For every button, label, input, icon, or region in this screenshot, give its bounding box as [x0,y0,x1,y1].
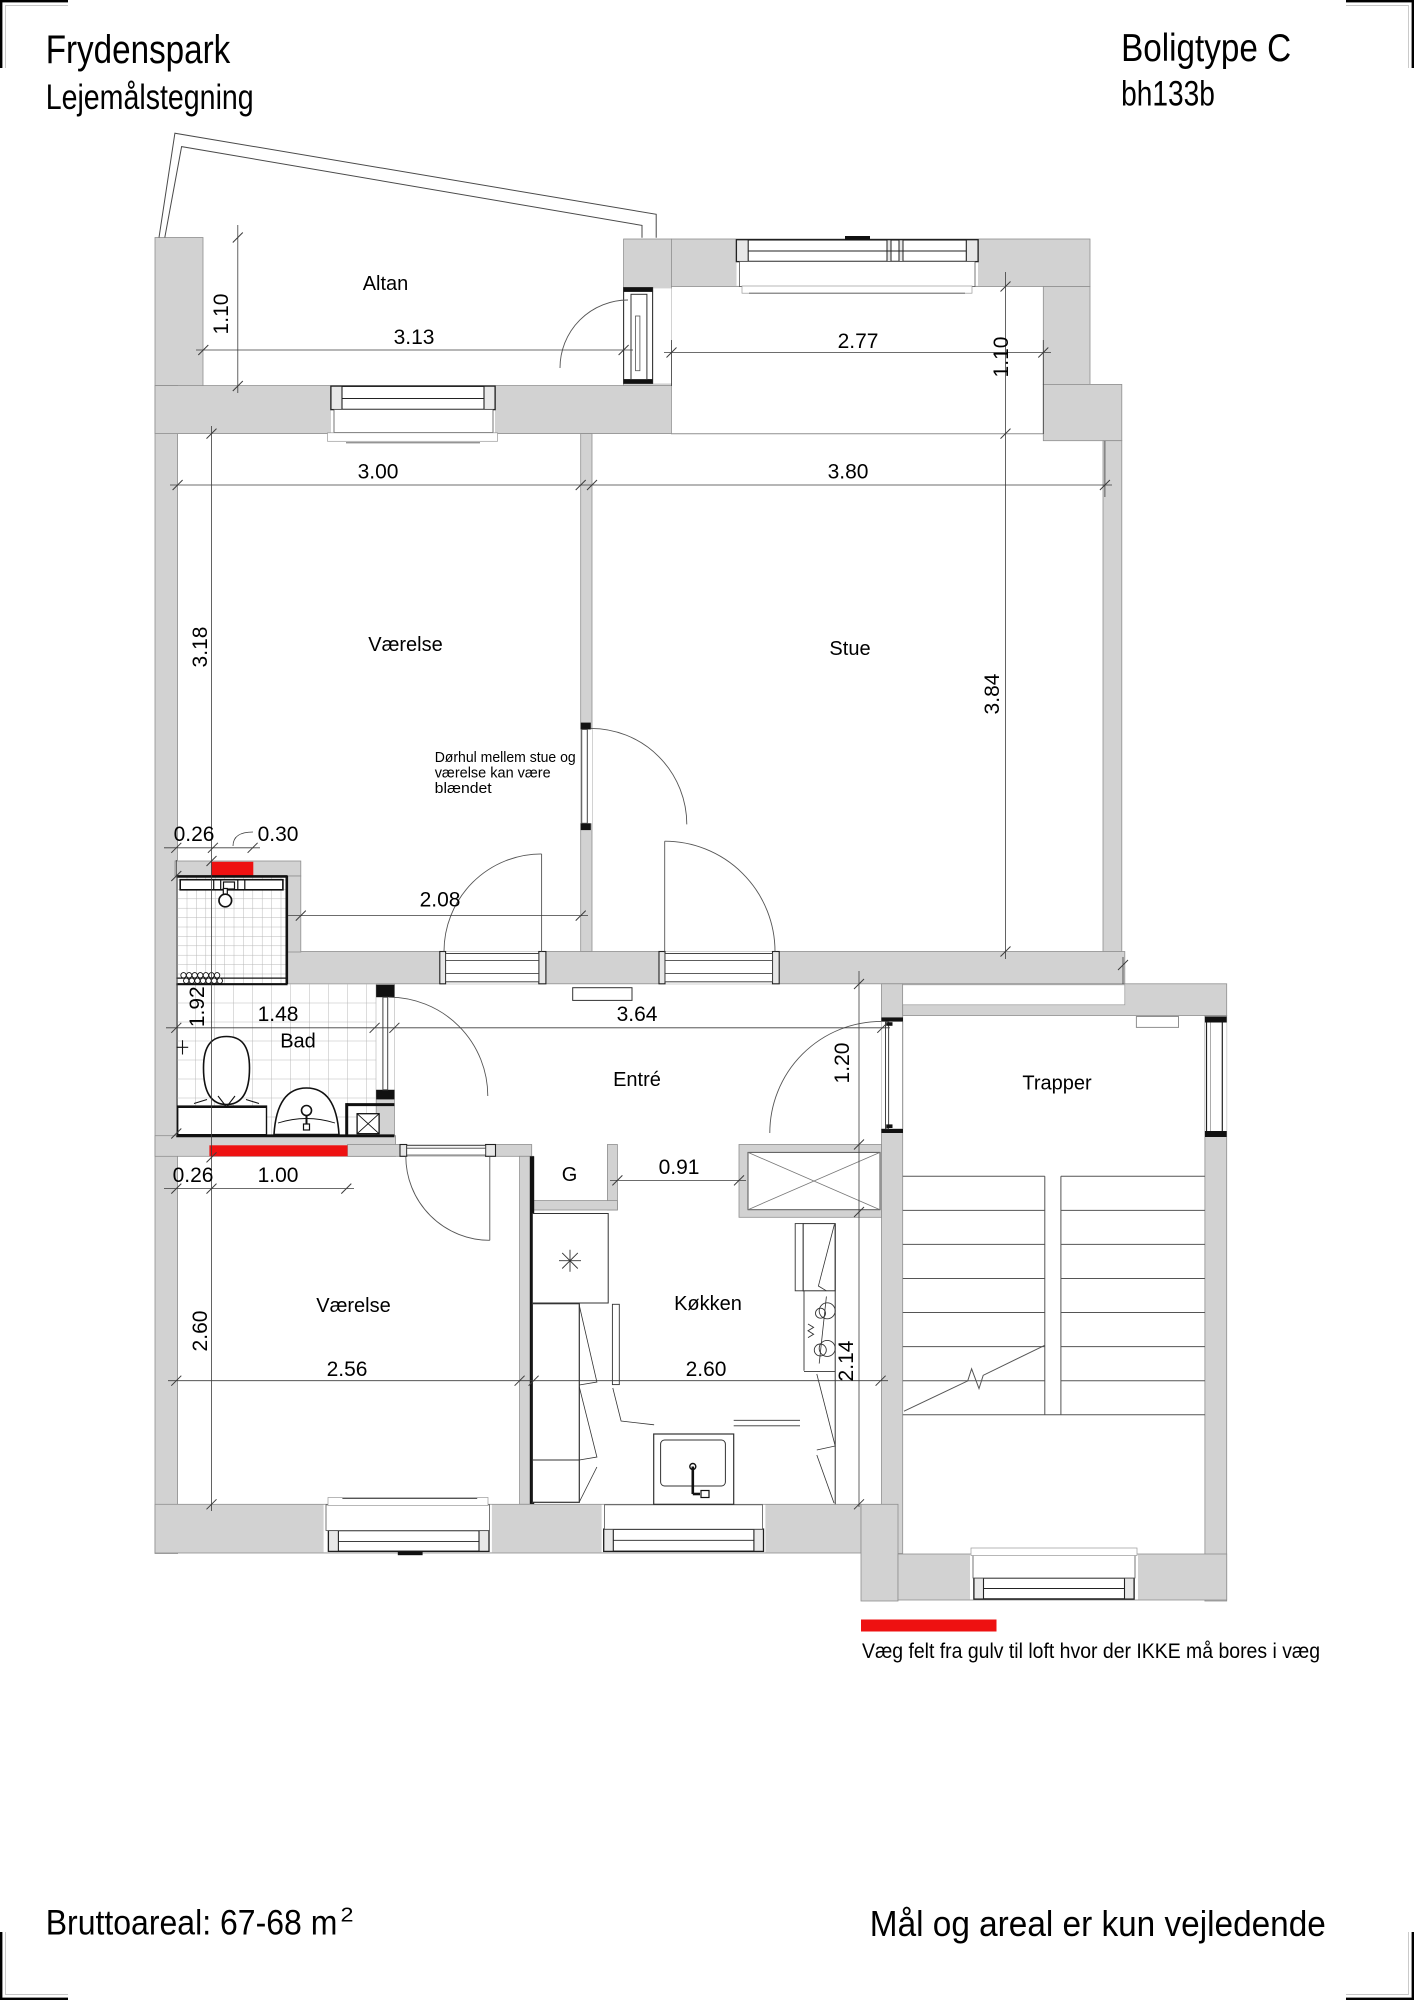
svg-text:2.60: 2.60 [686,1358,727,1381]
svg-text:bh133b: bh133b [1121,75,1215,114]
svg-text:Værelse: Værelse [316,1295,390,1317]
svg-text:Frydenspark: Frydenspark [46,28,231,72]
svg-text:1.92: 1.92 [186,986,209,1027]
svg-text:Lejemålstegning: Lejemålstegning [46,78,254,117]
svg-text:G: G [562,1164,578,1186]
svg-text:Værelse: Værelse [368,634,442,656]
svg-text:1.10: 1.10 [990,337,1013,378]
svg-text:Dørhul mellem stue og: Dørhul mellem stue og [435,749,576,766]
svg-text:Køkken: Køkken [674,1293,742,1315]
svg-text:Væg felt fra gulv til loft hvo: Væg felt fra gulv til loft hvor der IKKE… [862,1640,1320,1663]
svg-text:3.13: 3.13 [394,326,435,349]
svg-text:2.56: 2.56 [327,1358,368,1381]
svg-text:Altan: Altan [363,273,409,295]
svg-text:1.10: 1.10 [210,294,233,335]
svg-text:3.64: 3.64 [617,1003,658,1026]
svg-text:3.80: 3.80 [828,461,869,484]
svg-text:Boligtype C: Boligtype C [1121,27,1291,70]
svg-text:1.00: 1.00 [258,1164,299,1187]
svg-text:2.60: 2.60 [189,1311,212,1352]
svg-text:2: 2 [341,1905,354,1927]
svg-text:værelse kan være: værelse kan være [435,765,551,782]
svg-text:blændet: blændet [435,780,493,797]
svg-text:Bad: Bad [280,1031,316,1053]
svg-text:3.18: 3.18 [189,627,212,668]
svg-text:0.26: 0.26 [173,1164,214,1187]
svg-text:0.26: 0.26 [174,823,215,846]
svg-text:2.08: 2.08 [420,889,461,912]
svg-text:3.00: 3.00 [358,461,399,484]
svg-text:Bruttoareal: 67-68 m: Bruttoareal: 67-68 m [46,1904,338,1943]
svg-text:1.48: 1.48 [258,1003,299,1026]
svg-text:Stue: Stue [829,638,870,660]
svg-text:2.14: 2.14 [835,1340,858,1381]
svg-text:1.20: 1.20 [831,1043,854,1084]
svg-text:0.91: 0.91 [659,1156,700,1179]
svg-text:0.30: 0.30 [258,823,299,846]
svg-text:Entré: Entré [613,1069,661,1091]
svg-text:Trapper: Trapper [1022,1073,1092,1095]
svg-text:3.84: 3.84 [981,673,1004,714]
svg-text:Mål og areal er kun vejledende: Mål og areal er kun vejledende [870,1903,1326,1944]
svg-text:2.77: 2.77 [838,330,879,353]
